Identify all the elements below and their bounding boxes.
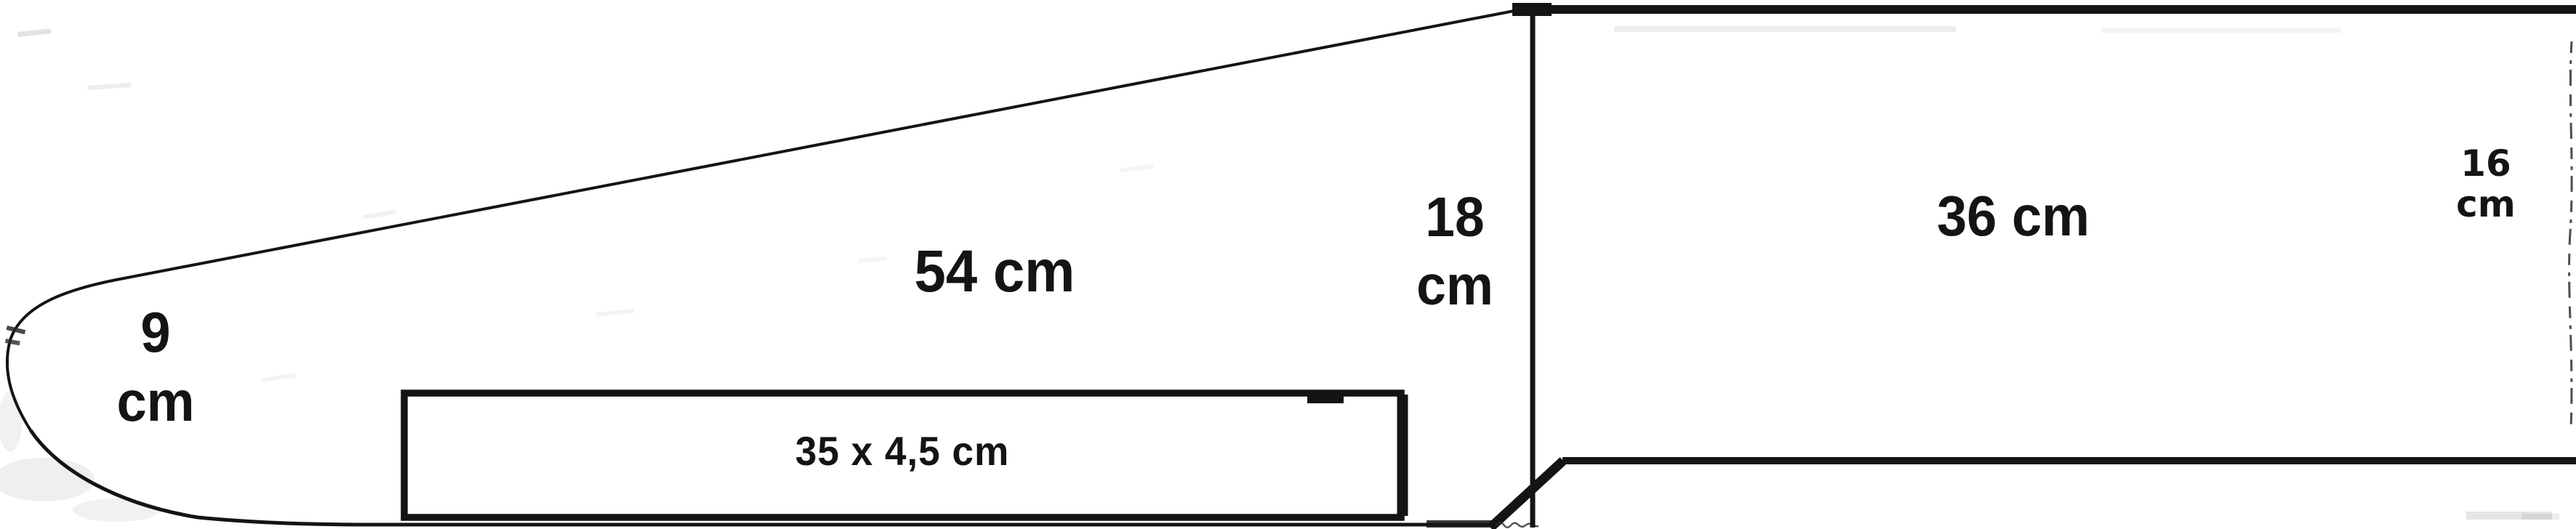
dim-label-panel-length: 36 cm [1937,182,2090,249]
pattern-outline-svg [0,0,2576,529]
dim-label-tip-height: 9 cm [116,298,194,436]
pattern-diagram: 9 cm 54 cm 35 x 4,5 cm 18 cm 36 cm 16 cm [0,0,2576,529]
dim-left-height-unit: cm [1416,251,1493,320]
dim-tip-height-value: 9 [116,298,194,367]
dim-right-height-unit: cm [2456,184,2516,225]
dim-label-right-height: 16 cm [2456,143,2516,225]
notch-diagonal-line [1490,461,1563,528]
dim-tip-height-unit: cm [116,367,194,436]
dim-label-slot-size: 35 x 4,5 cm [795,428,1009,475]
panel-right-edge-rough [2569,41,2572,429]
dim-left-height-value: 18 [1416,183,1493,251]
slot-rect-top-right-nub [1307,396,1344,403]
dim-label-left-height: 18 cm [1416,183,1493,320]
flap-top-diagonal-and-nose [7,8,1529,430]
dim-label-flap-length: 54 cm [915,237,1075,307]
dim-right-height-value: 16 [2456,143,2516,184]
nose-edge-ticks [5,326,25,345]
